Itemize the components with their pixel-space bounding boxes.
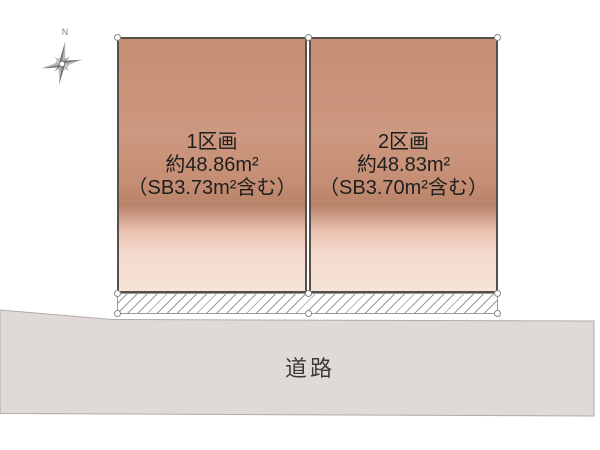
parcel-1-name: 1区画 — [128, 131, 297, 154]
corner-marker — [114, 290, 121, 297]
parcel-1: 1区画 約48.86m² （SB3.73m²含む） — [117, 37, 307, 293]
parcel-2-area: 約48.83m² — [319, 154, 488, 177]
corner-marker — [305, 310, 312, 317]
corner-marker — [494, 290, 501, 297]
corner-marker — [494, 310, 501, 317]
corner-marker — [114, 310, 121, 317]
road-label: 道路 — [250, 351, 370, 383]
corner-marker — [305, 290, 312, 297]
corner-marker — [494, 34, 501, 41]
parcel-1-note: （SB3.73m²含む） — [128, 177, 297, 200]
parcel-2-label: 2区画 約48.83m² （SB3.70m²含む） — [319, 131, 488, 200]
parcel-1-area: 約48.86m² — [128, 154, 297, 177]
parcel-2: 2区画 約48.83m² （SB3.70m²含む） — [309, 37, 498, 293]
land-plot-diagram: N 道路 1区画 約48.86m² — [0, 0, 600, 450]
corner-marker — [114, 34, 121, 41]
parcel-2-note: （SB3.70m²含む） — [319, 177, 488, 200]
parcel-2-name: 2区画 — [319, 131, 488, 154]
corner-marker — [305, 34, 312, 41]
parcel-1-label: 1区画 約48.86m² （SB3.73m²含む） — [128, 131, 297, 200]
